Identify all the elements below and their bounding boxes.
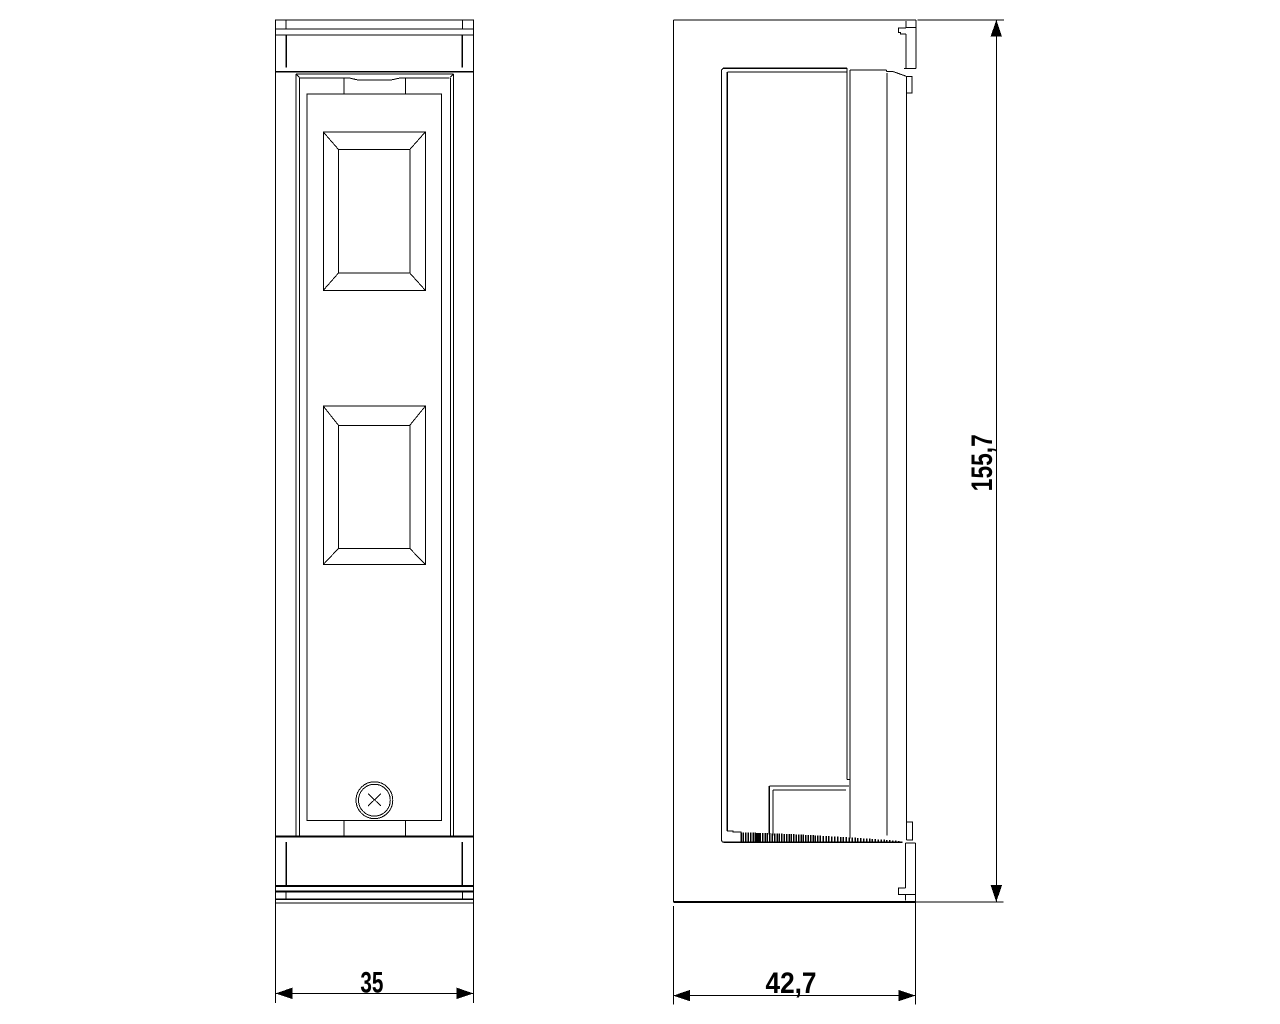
svg-text:35: 35 <box>360 966 383 999</box>
svg-text:42,7: 42,7 <box>766 967 817 1000</box>
svg-text:155,7: 155,7 <box>966 434 999 491</box>
